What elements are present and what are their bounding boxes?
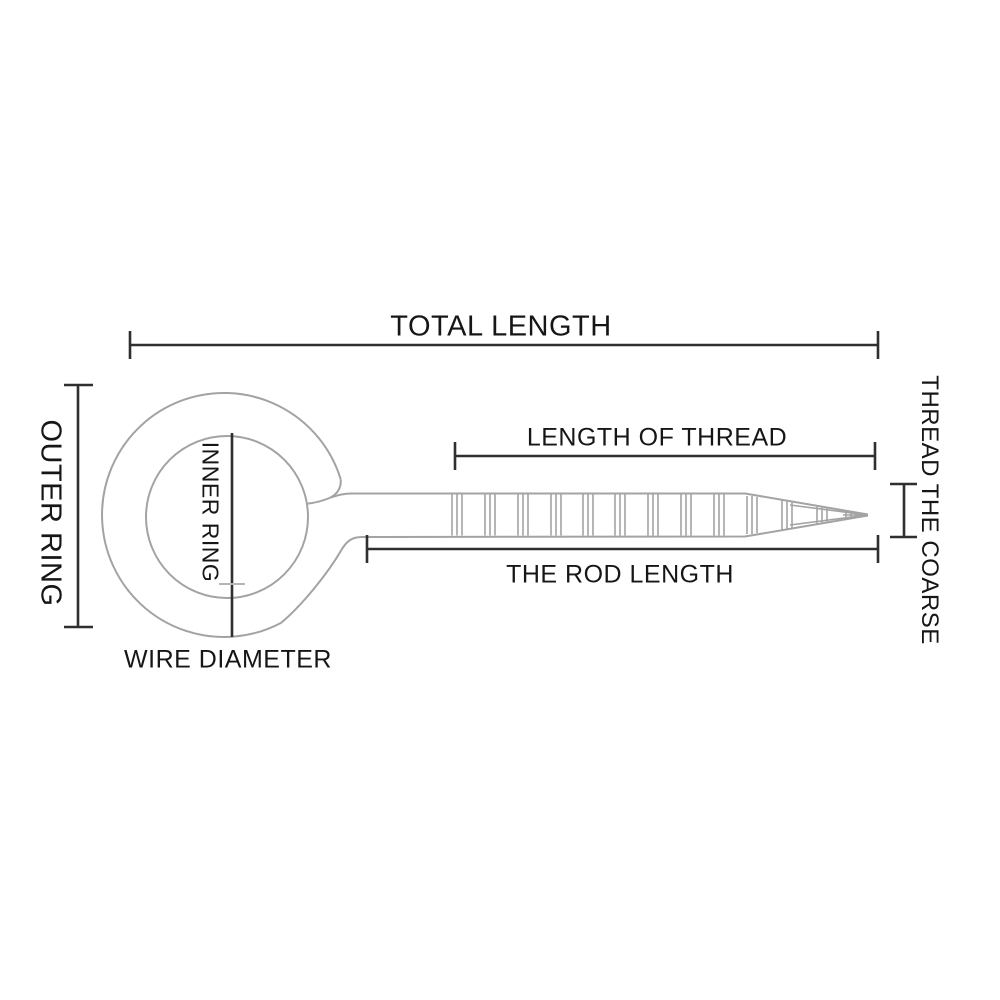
wire-end-hook bbox=[307, 479, 341, 504]
length-of-thread-label: LENGTH OF THREAD bbox=[527, 426, 787, 451]
outer-ring-dimension-line bbox=[64, 385, 93, 627]
outer-ring-label: OUTER RING bbox=[36, 419, 65, 606]
diagram-linework bbox=[0, 0, 1000, 1000]
inner-ring-label: INNER RING bbox=[199, 442, 222, 582]
total-length-label: TOTAL LENGTH bbox=[390, 313, 611, 342]
thread-lines-straight bbox=[452, 495, 724, 536]
eye-screw-dimension-diagram: TOTAL LENGTH OUTER RING INNER RING WIRE … bbox=[0, 0, 1000, 1000]
thread-coarse-dimension-line bbox=[890, 484, 917, 537]
thread-lines-taper bbox=[747, 496, 856, 534]
wire-diameter-label: WIRE DIAMETER bbox=[124, 648, 332, 673]
rod-length-dimension-line bbox=[367, 535, 878, 563]
rod-length-label: THE ROD LENGTH bbox=[506, 563, 734, 588]
thread-coarse-label: THREAD THE COARSE bbox=[917, 375, 941, 644]
eye-inner-ring-circle bbox=[146, 436, 308, 598]
